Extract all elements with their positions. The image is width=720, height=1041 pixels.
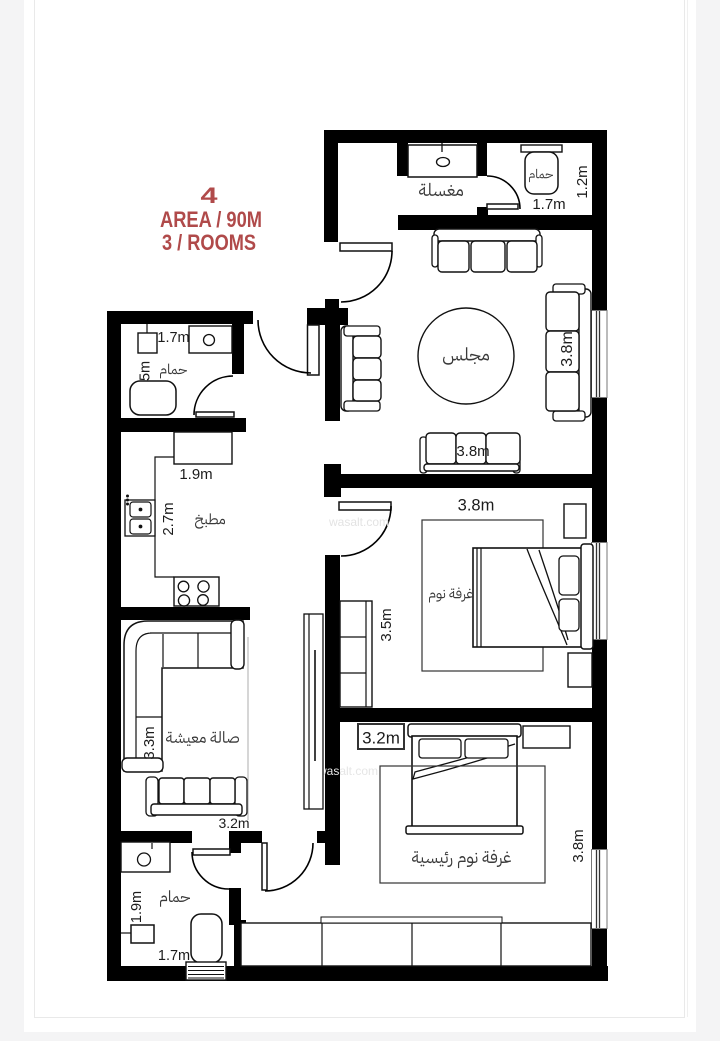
svg-text:3.2m: 3.2m [362,729,400,748]
svg-text:1.2m: 1.2m [574,165,591,198]
svg-text:3 / ROOMS: 3 / ROOMS [162,230,256,255]
svg-text:1.9m: 1.9m [129,891,145,923]
svg-text:3.8m: 3.8m [570,829,587,862]
svg-text:3.2m: 3.2m [218,815,249,831]
svg-text:AREA / 90M: AREA / 90M [160,207,262,232]
svg-text:1.7m: 1.7m [532,196,565,213]
svg-text:1.7m: 1.7m [158,948,190,964]
svg-text:3.8m: 3.8m [456,443,489,460]
svg-text:3.8m: 3.8m [458,497,495,515]
svg-text:3.8m: 3.8m [559,331,576,367]
svg-text:1.9m: 1.9m [179,466,212,483]
svg-text:3.5m: 3.5m [378,608,395,641]
svg-text:3.3m: 3.3m [141,726,158,759]
svg-text:2.7m: 2.7m [160,502,177,535]
svg-text:wasalt.com: wasalt.com [317,764,378,778]
svg-text:4: 4 [201,183,219,208]
svg-text:wasalt.com: wasalt.com [328,515,389,529]
svg-text:1.7m: 1.7m [157,330,189,346]
